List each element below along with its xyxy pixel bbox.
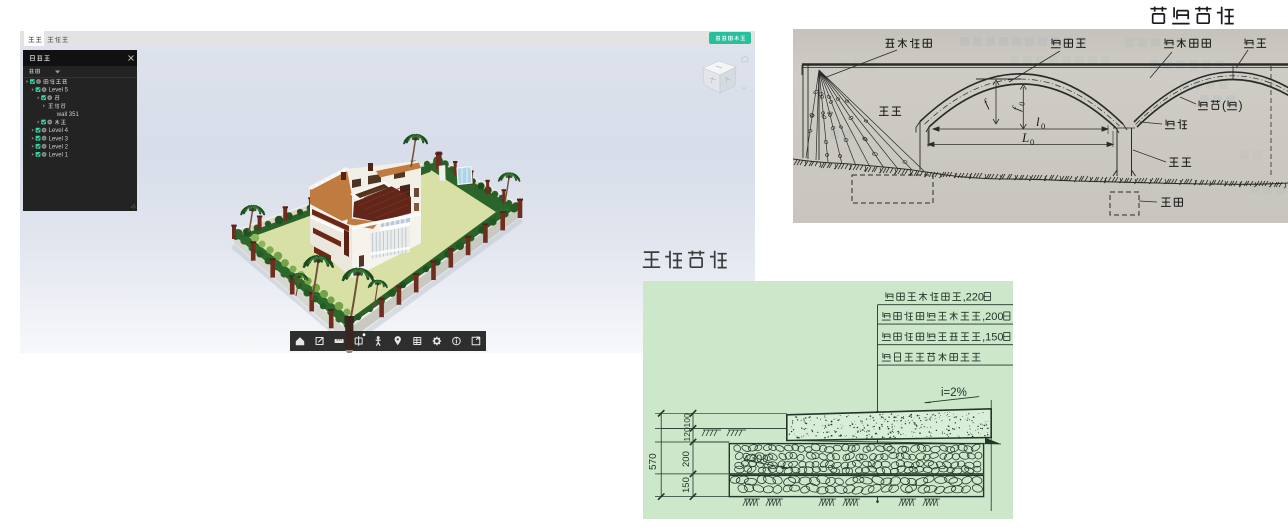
- svg-text:570: 570: [648, 453, 659, 470]
- svg-text:Level 1: Level 1: [49, 153, 69, 159]
- svg-text:Level 3: Level 3: [49, 136, 69, 142]
- svg-text:,200: ,200: [982, 311, 1003, 323]
- svg-text:l: l: [1036, 114, 1040, 129]
- svg-text:): ): [1239, 98, 1243, 112]
- svg-text:0: 0: [1030, 137, 1034, 147]
- svg-text:,220: ,220: [963, 291, 984, 303]
- svg-text:120: 120: [682, 427, 692, 441]
- svg-text:100: 100: [682, 413, 692, 427]
- svg-text:Level 5: Level 5: [49, 88, 69, 94]
- svg-text:0: 0: [1041, 121, 1045, 131]
- svg-text:L: L: [1021, 130, 1029, 145]
- svg-text:wall 351: wall 351: [56, 112, 80, 118]
- svg-text:Level 4: Level 4: [49, 128, 69, 134]
- svg-text:,150: ,150: [982, 331, 1003, 343]
- svg-text:(: (: [1222, 98, 1226, 112]
- svg-text:200: 200: [681, 451, 692, 467]
- svg-text:150: 150: [681, 477, 692, 493]
- svg-text:Level 2: Level 2: [49, 144, 69, 150]
- svg-text:i=2%: i=2%: [941, 387, 967, 399]
